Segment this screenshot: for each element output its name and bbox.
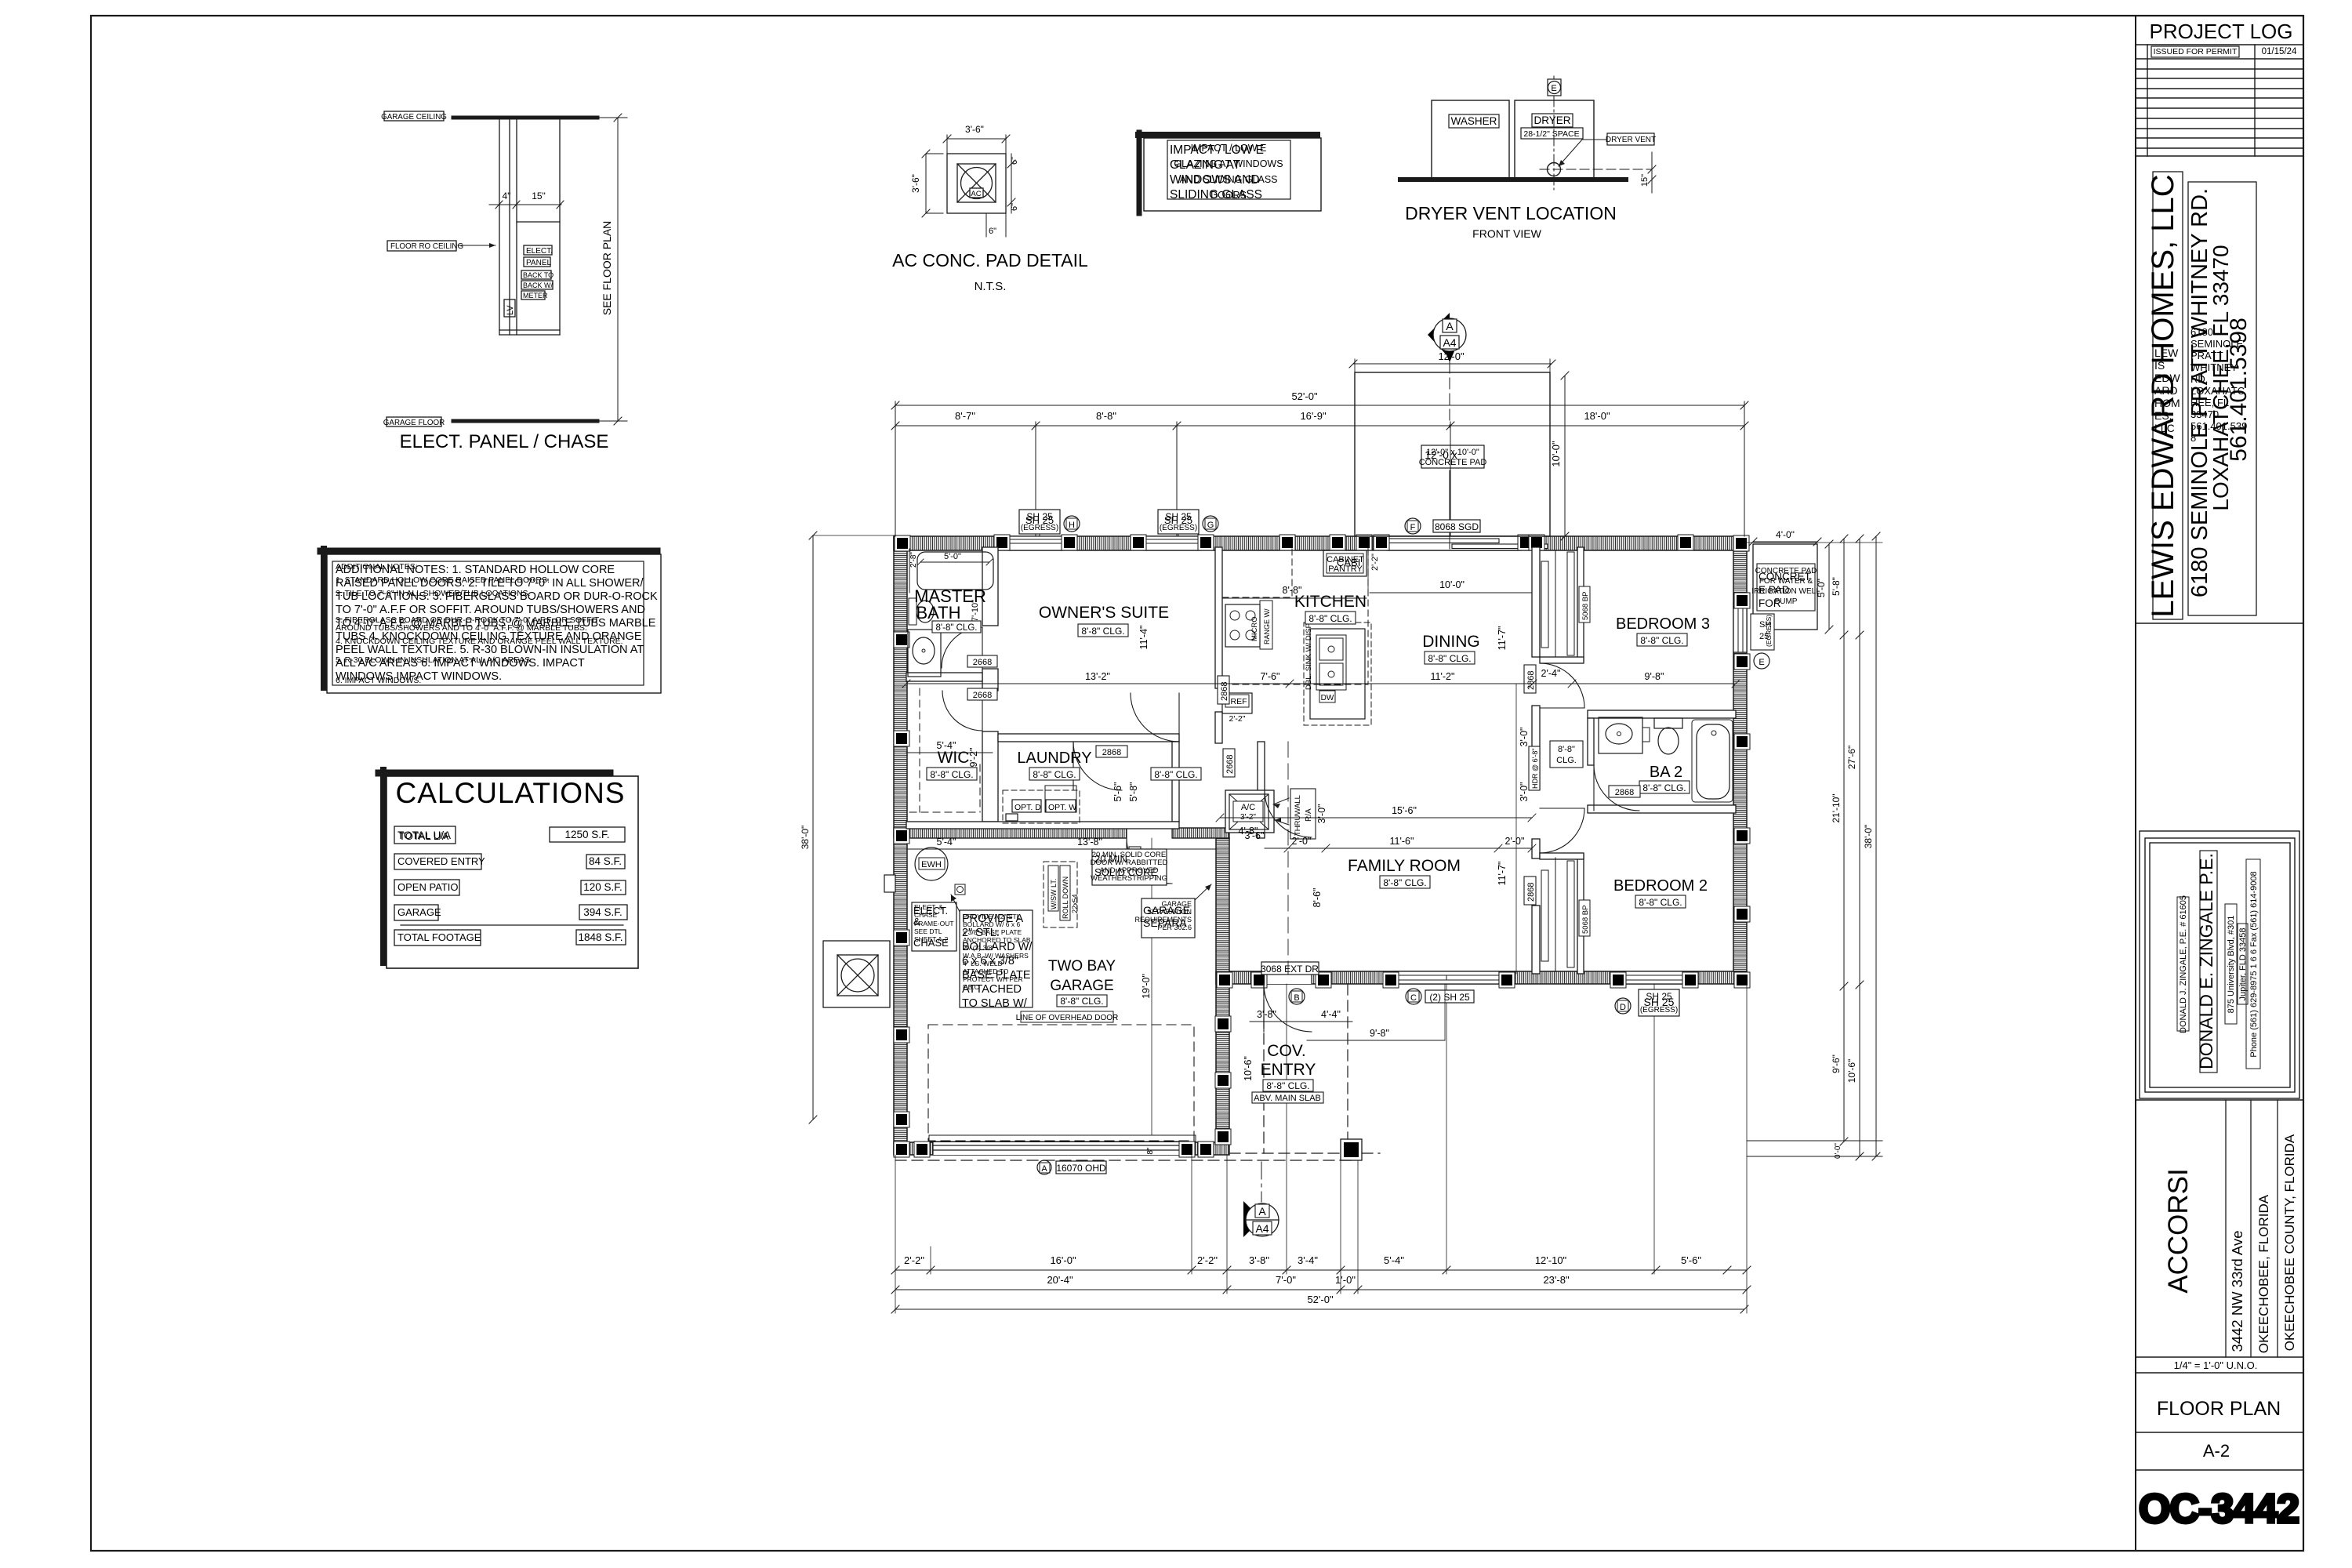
svg-text:HOM: HOM — [2154, 397, 2180, 409]
svg-text:11'-6": 11'-6" — [1390, 836, 1414, 847]
svg-text:SEE DTL: SEE DTL — [914, 927, 942, 935]
svg-text:6. IMPACT WINDOWS.: 6. IMPACT WINDOWS. — [336, 676, 421, 685]
svg-text:FLOOR PLAN: FLOOR PLAN — [2157, 1398, 2281, 1420]
svg-text:11'-7": 11'-7" — [1497, 626, 1508, 651]
svg-text:IS: IS — [2154, 359, 2165, 372]
svg-text:9'-2": 9'-2" — [968, 748, 979, 768]
svg-text:DBL. SINK W/ DISP.: DBL. SINK W/ DISP. — [1305, 622, 1313, 690]
svg-text:4'-0": 4'-0" — [1776, 529, 1795, 540]
svg-text:IMPACT / LOW E: IMPACT / LOW E — [1191, 143, 1267, 154]
svg-text:22x54: 22x54 — [1071, 894, 1079, 913]
svg-text:1'-0": 1'-0" — [1335, 1274, 1356, 1286]
svg-text:BACK TO: BACK TO — [523, 271, 554, 279]
svg-text:3'-6": 3'-6" — [1245, 830, 1265, 841]
svg-text:875 University Blvd, #301: 875 University Blvd, #301 — [2227, 916, 2236, 1014]
svg-text:8'-8" CLG.: 8'-8" CLG. — [930, 769, 973, 780]
svg-text:2'-0": 2'-0" — [1292, 836, 1312, 847]
svg-text:AC: AC — [971, 190, 981, 198]
svg-text:COV.: COV. — [1267, 1042, 1305, 1060]
svg-text:BATH: BATH — [916, 603, 960, 622]
svg-text:AND SLIDING GLASS: AND SLIDING GLASS — [1179, 174, 1277, 185]
svg-text:SH 25: SH 25 — [1164, 514, 1192, 526]
svg-text:394 S.F.: 394 S.F. — [583, 906, 622, 918]
svg-text:16'-9": 16'-9" — [1300, 410, 1327, 422]
svg-text:8'-8" CLG.: 8'-8" CLG. — [1154, 769, 1197, 780]
svg-text:MICRO: MICRO — [1250, 616, 1259, 641]
svg-text:DONALD E. ZINGALE P.E.: DONALD E. ZINGALE P.E. — [2196, 853, 2216, 1069]
svg-text:ELECT.: ELECT. — [913, 905, 948, 916]
svg-text:(EGRESS): (EGRESS) — [1765, 615, 1773, 647]
svg-text:ARD: ARD — [2154, 384, 2178, 397]
svg-text:A: A — [1446, 320, 1454, 332]
svg-text:8": 8" — [1146, 1147, 1155, 1155]
svg-text:52'-0": 52'-0" — [1291, 390, 1318, 402]
svg-text:HDR @ 6'-8": HDR @ 6'-8" — [1531, 748, 1539, 789]
svg-text:8'-6": 8'-6" — [1312, 888, 1323, 908]
svg-text:7'-6": 7'-6" — [1261, 671, 1280, 682]
svg-text:CONCRET: CONCRET — [1759, 571, 1811, 583]
svg-text:PROVIDE A: PROVIDE A — [962, 913, 1023, 925]
svg-text:SH 25: SH 25 — [1644, 996, 1675, 1008]
svg-text:12'-0 x: 12'-0 x — [1425, 448, 1457, 461]
svg-text:5'-8": 5'-8" — [1128, 782, 1139, 802]
svg-text:16070 OHD: 16070 OHD — [1056, 1163, 1106, 1174]
svg-text:ABV. MAIN SLAB: ABV. MAIN SLAB — [1254, 1094, 1321, 1103]
svg-text:2'-2": 2'-2" — [1197, 1254, 1218, 1266]
svg-text:ACCORSI: ACCORSI — [2163, 1168, 2194, 1293]
svg-text:DRYER VENT LOCATION: DRYER VENT LOCATION — [1405, 203, 1617, 223]
svg-text:BEDROOM 2: BEDROOM 2 — [1613, 877, 1708, 895]
svg-text:SEPARA: SEPARA — [1143, 916, 1187, 929]
svg-text:DONALD J. ZINGALE, P.E. # 6160: DONALD J. ZINGALE, P.E. # 61605 — [2179, 895, 2188, 1033]
svg-text:28-1/2" SPACE: 28-1/2" SPACE — [1523, 129, 1579, 139]
svg-text:REF: REF — [1231, 697, 1247, 706]
svg-text:ISSUED FOR PERMIT: ISSUED FOR PERMIT — [2154, 47, 2238, 56]
svg-text:2668: 2668 — [1225, 755, 1235, 774]
svg-text:8'-8" CLG.: 8'-8" CLG. — [1640, 635, 1683, 646]
svg-text:AC CONC. PAD DETAIL: AC CONC. PAD DETAIL — [892, 250, 1088, 270]
svg-text:6180: 6180 — [2190, 326, 2213, 338]
svg-text:ADDITIONAL NOTES:: ADDITIONAL NOTES: — [336, 562, 418, 572]
svg-text:GARAGE FLOOR: GARAGE FLOOR — [383, 419, 445, 427]
svg-text:TOTAL L/A: TOTAL L/A — [399, 830, 449, 842]
svg-text:METER: METER — [523, 292, 548, 299]
svg-text:9'-8": 9'-8" — [1645, 671, 1664, 682]
svg-text:2'-2": 2'-2" — [1229, 714, 1246, 724]
svg-text:18'-0": 18'-0" — [1584, 410, 1610, 422]
svg-text:3'-6": 3'-6" — [965, 124, 984, 135]
svg-text:KITCHEN: KITCHEN — [1294, 593, 1367, 611]
svg-text:SOLID CORE: SOLID CORE — [1094, 866, 1158, 878]
svg-text:5'-6": 5'-6" — [1112, 782, 1123, 802]
svg-text:DOORS: DOORS — [1210, 190, 1247, 201]
svg-text:8'-8": 8'-8" — [1096, 410, 1116, 422]
svg-text:BEDROOM 3: BEDROOM 3 — [1616, 615, 1710, 633]
svg-text:8'-8" CLG.: 8'-8" CLG. — [1033, 769, 1076, 780]
svg-text:WASHER: WASHER — [1451, 115, 1497, 127]
svg-text:H: H — [1069, 521, 1075, 530]
svg-text:LINE OF OVERHEAD DOOR: LINE OF OVERHEAD DOOR — [1016, 1014, 1119, 1022]
svg-text:HEE, FL: HEE, FL — [2190, 397, 2229, 408]
svg-text:TO SLAB W/: TO SLAB W/ — [962, 997, 1028, 1010]
svg-text:6": 6" — [989, 227, 996, 236]
svg-text:A: A — [1258, 1205, 1266, 1218]
svg-text:2868: 2868 — [1526, 883, 1536, 902]
svg-text:2'-4": 2'-4" — [1541, 668, 1561, 679]
svg-text:TO 7'-0" A.F.F OR SOFFIT. ARO: TO 7'-0" A.F.F OR SOFFIT. AROUND TUBS/SH… — [336, 604, 645, 616]
svg-text:ES,: ES, — [2154, 409, 2172, 422]
svg-text:19'-0": 19'-0" — [1141, 974, 1152, 999]
svg-text:10'-0": 10'-0" — [1439, 579, 1465, 590]
svg-text:WIC: WIC — [938, 749, 970, 767]
svg-text:ROLL DOWN: ROLL DOWN — [1062, 877, 1069, 919]
svg-text:GLAZING AT WINDOWS: GLAZING AT WINDOWS — [1174, 158, 1283, 169]
svg-text:OKEECHOBEE COUNTY, FLORIDA: OKEECHOBEE COUNTY, FLORIDA — [2282, 1134, 2297, 1351]
svg-text:4. KNOCKDOWN CEILING TEXTURE A: 4. KNOCKDOWN CEILING TEXTURE AND ORANGE … — [336, 637, 623, 646]
svg-text:8'-8" CLG.: 8'-8" CLG. — [1308, 613, 1352, 624]
svg-text:A4: A4 — [1443, 336, 1456, 349]
svg-text:120 S.F.: 120 S.F. — [583, 881, 622, 893]
svg-text:0'-0": 0'-0" — [1834, 1143, 1842, 1159]
svg-text:3'-8": 3'-8" — [1257, 1009, 1276, 1020]
svg-text:01/15/24: 01/15/24 — [2262, 47, 2297, 56]
svg-text:11'-4": 11'-4" — [1138, 626, 1149, 650]
svg-text:E PAD: E PAD — [1759, 584, 1790, 596]
svg-text:7'-0": 7'-0" — [1276, 1274, 1296, 1286]
svg-text:G: G — [1207, 521, 1214, 530]
svg-text:27'-6": 27'-6" — [1846, 746, 1857, 770]
svg-text:RANGE W/: RANGE W/ — [1263, 608, 1271, 644]
svg-text:COVERED ENTRY: COVERED ENTRY — [397, 855, 485, 867]
svg-text:OWNER'S SUITE: OWNER'S SUITE — [1039, 604, 1169, 622]
svg-text:8'-8" CLG.: 8'-8" CLG. — [1060, 996, 1103, 1007]
svg-text:PROJECT LOG: PROJECT LOG — [2149, 20, 2292, 43]
svg-text:A/C: A/C — [1241, 803, 1255, 812]
svg-text:2'-2": 2'-2" — [904, 1254, 924, 1266]
svg-text:OKEECHOBEE, FLORIDA: OKEECHOBEE, FLORIDA — [2256, 1194, 2271, 1353]
svg-text:8'-8": 8'-8" — [1558, 745, 1575, 754]
svg-text:8'-8" CLG.: 8'-8" CLG. — [1266, 1080, 1309, 1091]
svg-text:5. R-30 BLOWN-IN INSULATION AT: 5. R-30 BLOWN-IN INSULATION AT ALL A/C A… — [336, 655, 532, 665]
svg-text:3'-0": 3'-0" — [1316, 804, 1327, 824]
svg-text:5'-0": 5'-0" — [1816, 579, 1827, 597]
svg-text:8'-8" CLG.: 8'-8" CLG. — [1428, 653, 1471, 664]
svg-text:OPT. W: OPT. W — [1048, 803, 1076, 812]
svg-text:4'-4": 4'-4" — [1321, 1009, 1341, 1020]
svg-text:OC-3442: OC-3442 — [2139, 1486, 2299, 1532]
svg-text:A: A — [1041, 1164, 1047, 1174]
svg-text:9'-8": 9'-8" — [1370, 1028, 1389, 1039]
svg-text:561.401.539: 561.401.539 — [2190, 420, 2247, 432]
svg-text:8'-8" CLG.: 8'-8" CLG. — [1639, 897, 1682, 908]
svg-text:84 S.F.: 84 S.F. — [589, 855, 622, 867]
svg-text:FAMILY ROOM: FAMILY ROOM — [1348, 857, 1461, 875]
svg-text:15'-6": 15'-6" — [1392, 805, 1417, 816]
svg-text:THRUWALL: THRUWALL — [1294, 795, 1302, 836]
svg-text:LEW: LEW — [2154, 347, 2179, 359]
svg-text:N.T.S.: N.T.S. — [975, 280, 1007, 293]
svg-text:ELECT. PANEL / CHASE: ELECT. PANEL / CHASE — [400, 431, 609, 452]
svg-text:FLOOR RO CEILING: FLOOR RO CEILING — [390, 242, 463, 251]
svg-text:GARAGE: GARAGE — [1143, 904, 1190, 916]
svg-text:12'-10": 12'-10" — [1535, 1254, 1567, 1266]
svg-text:8'-8" CLG.: 8'-8" CLG. — [1642, 782, 1686, 793]
svg-text:(2) SH 25: (2) SH 25 — [1429, 992, 1470, 1003]
svg-text:EWH: EWH — [921, 860, 942, 869]
svg-text:8'-7": 8'-7" — [955, 410, 975, 422]
svg-text:SEE FLOOR PLAN: SEE FLOOR PLAN — [601, 221, 613, 316]
svg-text:23'-8": 23'-8" — [1543, 1274, 1570, 1286]
svg-text:7'-10": 7'-10" — [971, 600, 980, 622]
svg-text:15": 15" — [1640, 174, 1650, 187]
svg-text:E: E — [1759, 658, 1764, 667]
svg-text:10'-6": 10'-6" — [1243, 1056, 1254, 1081]
svg-text:13'-8": 13'-8" — [1077, 837, 1102, 848]
svg-text:PRATT: PRATT — [2190, 350, 2223, 361]
svg-text:WHITNEY: WHITNEY — [2190, 361, 2238, 373]
svg-text:38'-0": 38'-0" — [800, 826, 811, 850]
svg-text:SEMINOLE: SEMINOLE — [2190, 338, 2244, 350]
svg-text:TWO BAY: TWO BAY — [1048, 958, 1116, 975]
svg-text:E: E — [1551, 84, 1556, 93]
svg-text:GARAGE CEILING: GARAGE CEILING — [381, 113, 447, 122]
svg-text:15": 15" — [532, 191, 546, 201]
svg-text:2668: 2668 — [973, 658, 992, 667]
svg-text:2868: 2868 — [1102, 748, 1121, 757]
svg-text:2'-0": 2'-0" — [1505, 836, 1525, 847]
svg-text:33470: 33470 — [2190, 408, 2219, 420]
svg-text:3'-4": 3'-4" — [1298, 1254, 1318, 1266]
svg-text:CLG.: CLG. — [1556, 756, 1577, 765]
svg-text:3'-6": 3'-6" — [910, 174, 921, 193]
svg-text:BASE PLATE: BASE PLATE — [962, 969, 1031, 982]
svg-text:2868: 2868 — [1615, 788, 1634, 797]
svg-text:1848 S.F.: 1848 S.F. — [578, 931, 622, 943]
svg-text:RD.: RD. — [2190, 373, 2208, 385]
svg-text:16'-0": 16'-0" — [1050, 1254, 1076, 1266]
svg-text:TOTAL FOOTAGE: TOTAL FOOTAGE — [397, 931, 481, 943]
svg-text:ELECT.: ELECT. — [526, 247, 553, 256]
svg-text:9'-6": 9'-6" — [1831, 1054, 1842, 1073]
svg-text:5'-4": 5'-4" — [937, 837, 956, 848]
svg-text:21'-10": 21'-10" — [1831, 793, 1842, 822]
svg-text:5'-4": 5'-4" — [1384, 1254, 1404, 1266]
svg-text:20'-4": 20'-4" — [1047, 1274, 1073, 1286]
svg-text:1250 S.F.: 1250 S.F. — [564, 829, 609, 840]
svg-text:OPEN PATIO: OPEN PATIO — [397, 881, 459, 893]
svg-text:B: B — [1294, 993, 1299, 1003]
svg-text:BA 2: BA 2 — [1650, 764, 1682, 781]
svg-text:1/4" = 1'-0" U.N.O.: 1/4" = 1'-0" U.N.O. — [2174, 1359, 2258, 1371]
svg-text:52'-0": 52'-0" — [1307, 1294, 1334, 1305]
svg-text:3'-0": 3'-0" — [1519, 782, 1530, 802]
svg-text:8'-8" CLG.: 8'-8" CLG. — [936, 623, 978, 633]
svg-text:SH 25: SH 25 — [1025, 514, 1054, 526]
svg-text:10'-6": 10'-6" — [1846, 1059, 1857, 1083]
svg-text:13'-2": 13'-2" — [1085, 671, 1110, 682]
svg-text:2868: 2868 — [1220, 682, 1229, 701]
svg-text:CALCULATIONS: CALCULATIONS — [396, 777, 626, 809]
svg-text:R/A: R/A — [1305, 808, 1313, 822]
svg-text:2" STL.: 2" STL. — [962, 927, 1000, 939]
svg-text:DRYER VENT: DRYER VENT — [1606, 136, 1656, 144]
svg-text:8068 SGD: 8068 SGD — [1435, 521, 1479, 532]
svg-text:PANEL: PANEL — [526, 259, 551, 267]
svg-text:BACK W/: BACK W/ — [523, 281, 554, 289]
svg-text:8'-8": 8'-8" — [1283, 585, 1302, 596]
svg-text:CABI: CABI — [1337, 557, 1360, 568]
svg-text:3'-8": 3'-8" — [1249, 1254, 1269, 1266]
svg-text:5'-0": 5'-0" — [944, 552, 961, 561]
svg-text:8: 8 — [2190, 432, 2196, 444]
svg-text:GARAGE: GARAGE — [1050, 978, 1113, 994]
svg-text:2868: 2868 — [1526, 671, 1536, 690]
svg-text:3068 EXT DR: 3068 EXT DR — [1261, 964, 1319, 975]
svg-text:Phone (561) 629-8975 1 6 6 Fax: Phone (561) 629-8975 1 6 6 Fax (561) 614… — [2249, 871, 2259, 1057]
svg-text:20 MIN: 20 MIN — [1094, 853, 1127, 865]
svg-text:D: D — [1620, 1003, 1626, 1012]
svg-text:W/SW LT.: W/SW LT. — [1050, 879, 1058, 909]
svg-text:2'-2": 2'-2" — [1370, 554, 1380, 571]
svg-text:OPT. D: OPT. D — [1014, 803, 1041, 812]
svg-text:LV: LV — [506, 305, 515, 315]
svg-text:4": 4" — [503, 191, 511, 201]
svg-text:&: & — [913, 916, 920, 927]
svg-text:ENTRY: ENTRY — [1261, 1061, 1316, 1079]
svg-text:F: F — [1410, 523, 1416, 532]
svg-text:DRYER: DRYER — [1534, 114, 1570, 126]
svg-text:LAUNDRY: LAUNDRY — [1017, 750, 1091, 767]
svg-text:LLC: LLC — [2154, 422, 2175, 434]
svg-text:AROUND TUBS/SHOWERS AND TO 4'-: AROUND TUBS/SHOWERS AND TO 4'-0" A.F.F. … — [336, 623, 587, 633]
svg-text:DINING: DINING — [1422, 633, 1480, 651]
svg-text:5068 BP: 5068 BP — [1581, 906, 1590, 934]
svg-text:5'-8": 5'-8" — [1831, 577, 1842, 596]
svg-text:6 x 6 x 3/8": 6 x 6 x 3/8" — [962, 955, 1018, 967]
svg-text:ATTACHED: ATTACHED — [962, 983, 1022, 996]
svg-text:10'-0": 10'-0" — [1550, 441, 1562, 467]
svg-text:BOLLARD W/: BOLLARD W/ — [962, 941, 1033, 953]
svg-text:2. TILE TO 7'-0" IN ALL SHOWER: 2. TILE TO 7'-0" IN ALL SHOWER/TUB LOCAT… — [336, 589, 530, 598]
svg-text:8'-8" CLG.: 8'-8" CLG. — [1081, 626, 1124, 637]
svg-text:EDW: EDW — [2154, 372, 2180, 384]
svg-text:FOR: FOR — [1759, 597, 1781, 609]
svg-text:1. STANDARD HOLLOW CORE RAISE: 1. STANDARD HOLLOW CORE RAISED PANEL DOO… — [336, 575, 550, 585]
svg-text:2668: 2668 — [973, 691, 992, 700]
svg-text:A4: A4 — [1255, 1222, 1269, 1235]
svg-text:3'-2": 3'-2" — [1240, 813, 1256, 822]
svg-text:2'-8": 2'-8" — [909, 552, 918, 568]
svg-text:DW: DW — [1321, 694, 1334, 702]
svg-text:C: C — [1410, 993, 1417, 1003]
svg-text:FRONT VIEW: FRONT VIEW — [1472, 227, 1541, 240]
svg-text:11'-7": 11'-7" — [1497, 862, 1508, 886]
svg-text:GARAGE: GARAGE — [397, 906, 441, 918]
svg-text:LOXAHATC: LOXAHATC — [2190, 385, 2245, 397]
svg-text:5'-4": 5'-4" — [937, 740, 956, 751]
svg-text:5068 BP: 5068 BP — [1581, 592, 1590, 620]
svg-text:38'-0": 38'-0" — [1863, 825, 1874, 849]
svg-text:3'-0": 3'-0" — [1519, 728, 1530, 747]
svg-text:CHASE: CHASE — [913, 937, 949, 949]
svg-text:3442 NW 33rd Ave: 3442 NW 33rd Ave — [2229, 1231, 2245, 1352]
svg-text:5'-6": 5'-6" — [1681, 1254, 1701, 1266]
svg-text:8'-8" CLG.: 8'-8" CLG. — [1383, 877, 1426, 888]
svg-text:11'-2": 11'-2" — [1431, 671, 1455, 682]
svg-text:A-2: A-2 — [2203, 1441, 2230, 1461]
